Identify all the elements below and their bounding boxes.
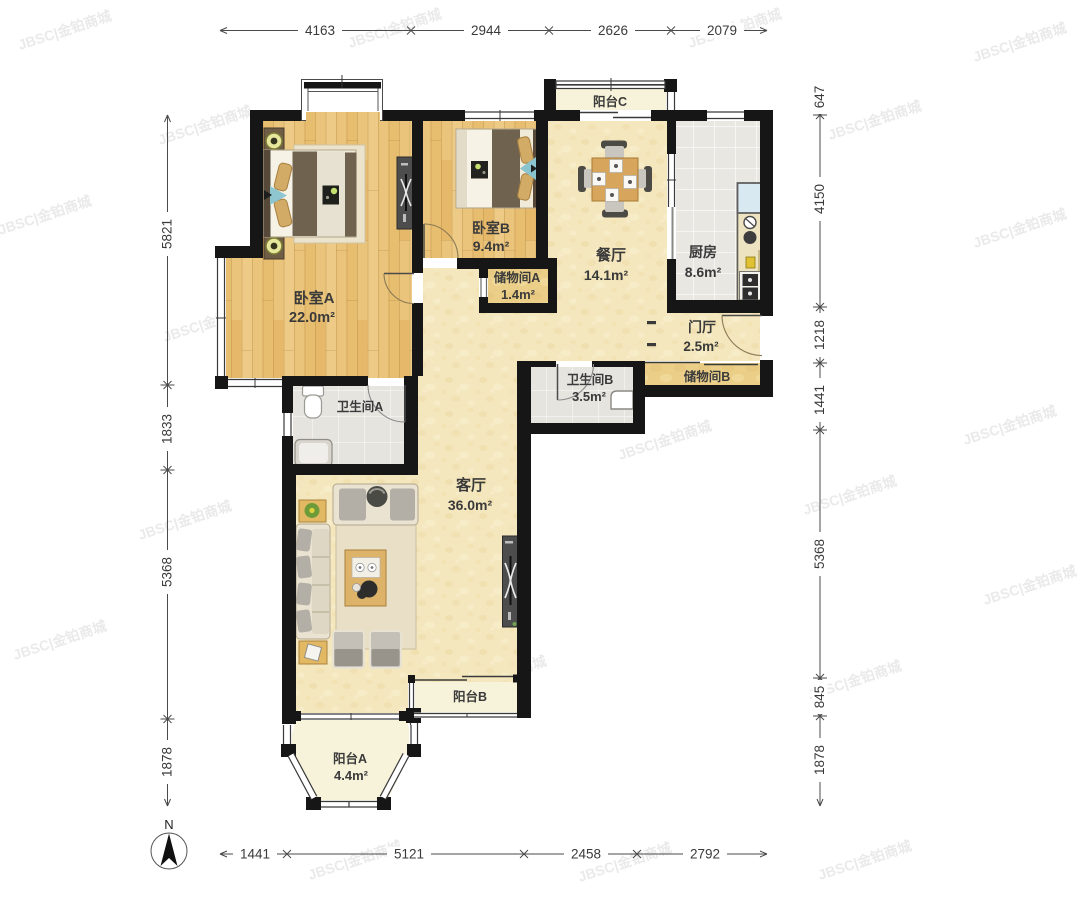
svg-text:5368: 5368 (160, 557, 175, 587)
svg-text:储物间A: 储物间A (493, 270, 541, 285)
svg-text:JBSC|金铂商城: JBSC|金铂商城 (136, 498, 233, 543)
svg-text:5121: 5121 (394, 847, 424, 862)
svg-text:JBSC|金铂商城: JBSC|金铂商城 (11, 618, 108, 663)
svg-text:8.6m²: 8.6m² (685, 264, 722, 280)
svg-text:1218: 1218 (812, 320, 827, 350)
svg-text:JBSC|金铂商城: JBSC|金铂商城 (971, 206, 1068, 251)
svg-text:2626: 2626 (598, 23, 628, 38)
svg-text:储物间B: 储物间B (683, 369, 731, 384)
svg-text:餐厅: 餐厅 (596, 246, 626, 264)
svg-text:22.0m²: 22.0m² (289, 310, 335, 326)
svg-text:1878: 1878 (812, 745, 827, 775)
svg-text:卫生间B: 卫生间B (567, 372, 614, 387)
svg-text:N: N (164, 817, 173, 832)
svg-text:5821: 5821 (160, 219, 175, 249)
svg-text:2458: 2458 (571, 847, 601, 862)
svg-text:647: 647 (812, 86, 827, 109)
svg-text:4163: 4163 (305, 23, 335, 38)
svg-text:4150: 4150 (812, 184, 827, 214)
svg-text:2792: 2792 (690, 847, 720, 862)
svg-text:1441: 1441 (240, 847, 270, 862)
svg-text:845: 845 (812, 686, 827, 709)
svg-text:3.5m²: 3.5m² (572, 389, 607, 404)
svg-text:2079: 2079 (707, 23, 737, 38)
svg-text:卫生间A: 卫生间A (337, 399, 384, 414)
svg-text:JBSC|金铂商城: JBSC|金铂商城 (981, 563, 1078, 608)
svg-text:2944: 2944 (471, 23, 502, 38)
svg-text:JBSC|金铂商城: JBSC|金铂商城 (816, 838, 913, 883)
svg-text:厨房: 厨房 (689, 244, 717, 260)
svg-text:JBSC|金铂商城: JBSC|金铂商城 (961, 403, 1058, 448)
svg-text:阳台C: 阳台C (593, 94, 627, 109)
svg-text:1.4m²: 1.4m² (501, 287, 536, 302)
svg-text:阳台B: 阳台B (453, 689, 487, 704)
svg-text:JBSC|金铂商城: JBSC|金铂商城 (0, 193, 93, 238)
svg-text:JBSC|金铂商城: JBSC|金铂商城 (826, 98, 923, 143)
svg-text:9.4m²: 9.4m² (473, 238, 510, 254)
svg-text:1833: 1833 (160, 414, 175, 444)
svg-text:卧室A: 卧室A (294, 289, 335, 307)
svg-text:JBSC|金铂商城: JBSC|金铂商城 (16, 8, 113, 53)
svg-text:1878: 1878 (160, 747, 175, 777)
svg-text:4.4m²: 4.4m² (334, 768, 369, 783)
svg-text:JBSC|金铂商城: JBSC|金铂商城 (346, 6, 443, 51)
svg-text:门厅: 门厅 (688, 319, 716, 335)
svg-text:JBSC|金铂商城: JBSC|金铂商城 (156, 103, 253, 148)
svg-text:36.0m²: 36.0m² (448, 497, 493, 513)
svg-text:JBSC|金铂商城: JBSC|金铂商城 (801, 473, 898, 518)
svg-text:卧室B: 卧室B (472, 220, 510, 236)
svg-text:5368: 5368 (812, 539, 827, 569)
svg-text:JBSC|金铂商城: JBSC|金铂商城 (971, 20, 1068, 65)
svg-text:客厅: 客厅 (455, 476, 486, 494)
svg-text:1441: 1441 (812, 385, 827, 415)
svg-text:14.1m²: 14.1m² (584, 267, 629, 283)
svg-text:阳台A: 阳台A (333, 751, 367, 766)
svg-text:2.5m²: 2.5m² (683, 339, 719, 354)
